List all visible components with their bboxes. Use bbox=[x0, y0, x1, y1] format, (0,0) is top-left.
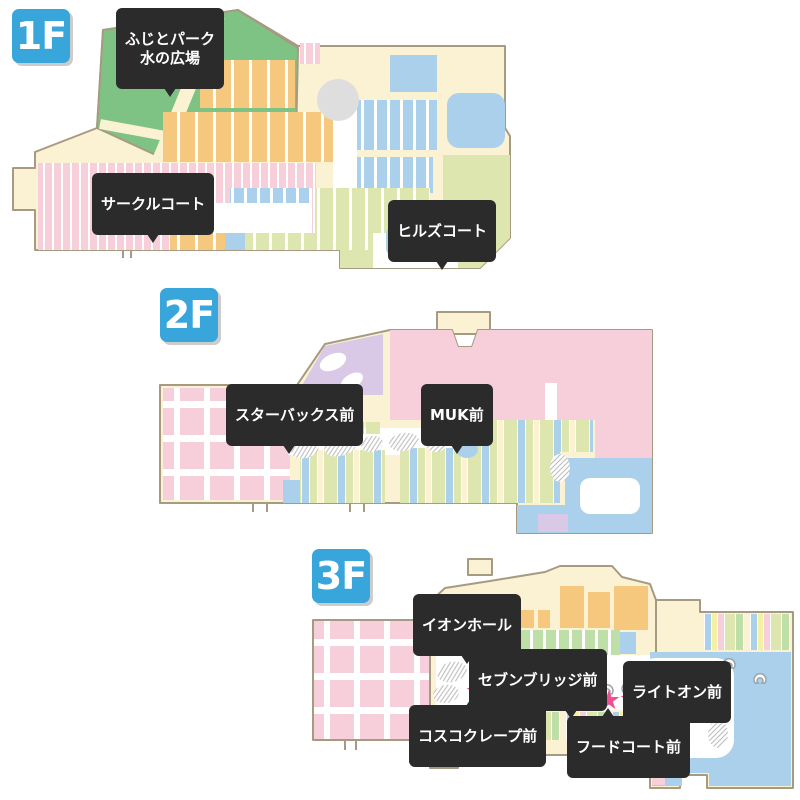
shop-block bbox=[538, 514, 568, 532]
label-text: フードコート前 bbox=[576, 738, 681, 756]
label-text: スターバックス前 bbox=[235, 406, 354, 424]
shop-block bbox=[390, 55, 437, 92]
label-cosco-crepe: コスコクレープ前 bbox=[409, 705, 546, 767]
floor-2-badge: 2F bbox=[160, 288, 218, 342]
shop-block bbox=[614, 586, 648, 630]
shop-block bbox=[300, 450, 385, 503]
floor-3-badge: 3F bbox=[312, 549, 370, 603]
label-text: コスコクレープ前 bbox=[418, 727, 537, 745]
shop-block bbox=[163, 112, 333, 162]
label-pointer bbox=[451, 445, 463, 454]
corridor bbox=[333, 110, 357, 195]
label-text: セブンブリッジ前 bbox=[478, 671, 598, 689]
label-text: サークルコート bbox=[101, 195, 205, 213]
label-pointer bbox=[147, 234, 159, 243]
corridor bbox=[580, 478, 640, 514]
label-circle-court: サークルコート bbox=[92, 173, 214, 235]
shop-block bbox=[447, 93, 505, 148]
label-pointer bbox=[436, 261, 448, 270]
planter bbox=[550, 454, 570, 482]
shop-block bbox=[595, 420, 652, 458]
label-text: ヒルズコート bbox=[397, 222, 487, 240]
label-pointer bbox=[164, 88, 176, 97]
circle-plaza bbox=[317, 79, 359, 121]
label-pointer bbox=[283, 445, 295, 454]
shop-block bbox=[170, 233, 225, 250]
label-fujito-park: ふじとパーク 水の広場 bbox=[116, 8, 224, 89]
label-aeon-hall: イオンホール bbox=[413, 594, 521, 656]
shop-block bbox=[300, 43, 320, 64]
label-text: MUK前 bbox=[430, 406, 484, 424]
shop-block bbox=[245, 233, 373, 250]
label-text: イオンホール bbox=[422, 616, 512, 634]
label-right-on: ライトオン前 bbox=[623, 661, 731, 723]
shop-block bbox=[520, 610, 534, 628]
shop-block bbox=[620, 632, 636, 654]
label-starbucks: スターバックス前 bbox=[226, 384, 363, 446]
label-muk: MUK前 bbox=[421, 384, 493, 446]
label-hills-court: ヒルズコート bbox=[388, 200, 496, 262]
shop-block bbox=[700, 614, 791, 650]
label-food-court: フードコート前 bbox=[567, 716, 690, 778]
shop-block bbox=[357, 100, 437, 150]
shop-block bbox=[588, 592, 610, 628]
label-pointer bbox=[602, 708, 614, 717]
label-seven-bridge: セブンブリッジ前 bbox=[469, 649, 607, 711]
shop-block bbox=[357, 157, 433, 193]
roof-tab bbox=[468, 559, 492, 575]
label-text: ふじとパーク 水の広場 bbox=[125, 30, 215, 67]
shop-block bbox=[366, 422, 380, 434]
planter bbox=[708, 720, 728, 748]
floor-map-page: 1F 2F 3F ★ ★ ★ ★ ★ ★ ★ ★ ★ ★ ふじとパーク 水の広場… bbox=[0, 0, 800, 800]
shop-block bbox=[560, 586, 584, 628]
floor-1-badge: 1F bbox=[12, 9, 70, 63]
label-text: ライトオン前 bbox=[632, 683, 722, 701]
shop-block bbox=[400, 448, 560, 503]
label-pointer bbox=[466, 697, 478, 706]
corridor bbox=[545, 383, 557, 420]
shop-block bbox=[538, 610, 550, 628]
shop-block bbox=[225, 233, 245, 250]
